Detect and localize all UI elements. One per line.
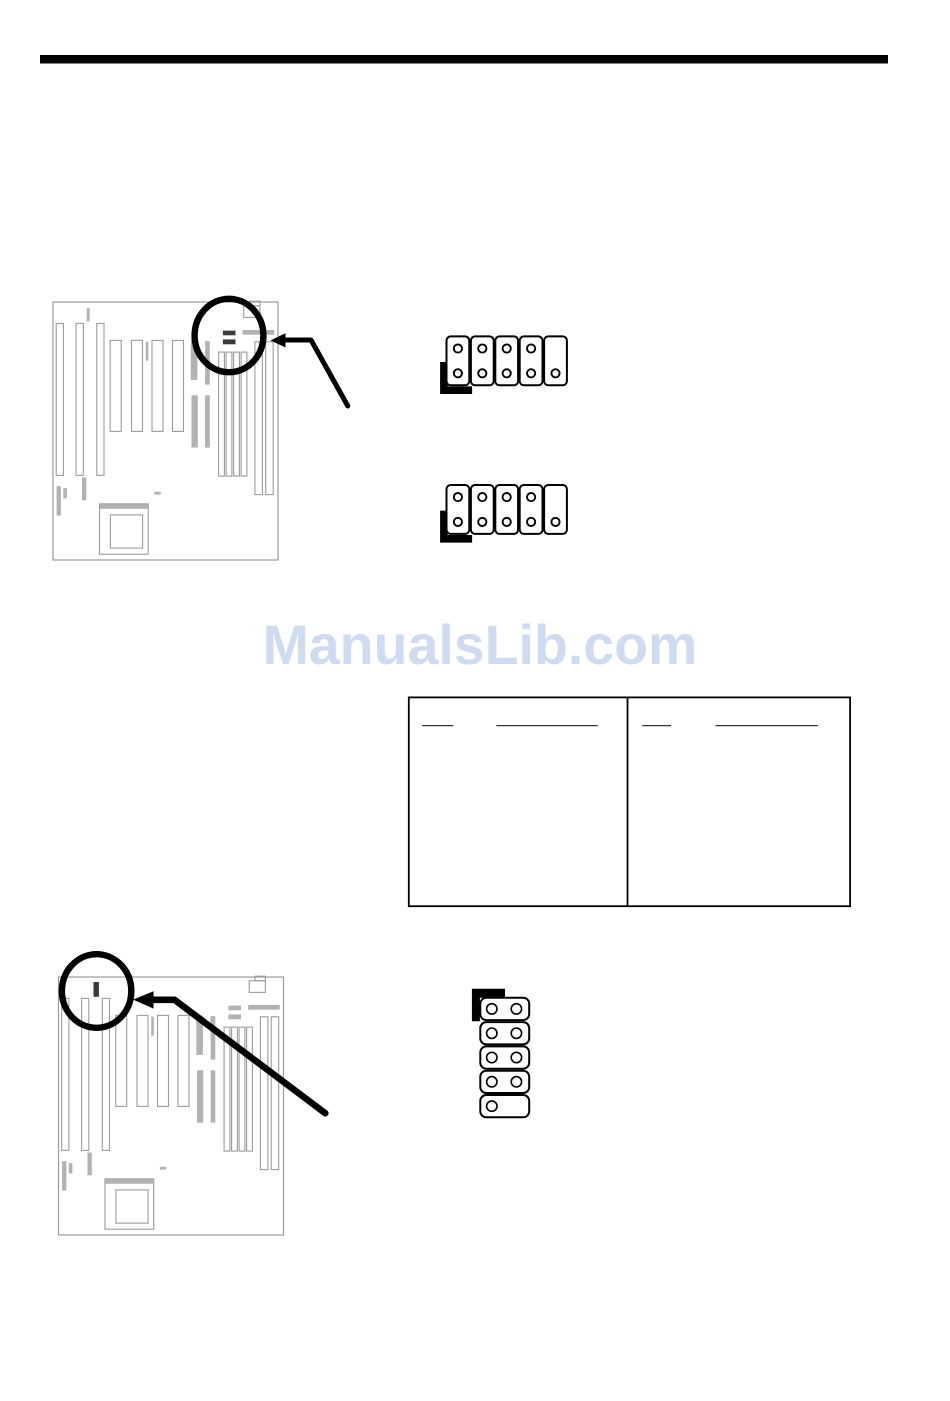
svg-text:ManualsLib.com: ManualsLib.com — [263, 614, 698, 676]
